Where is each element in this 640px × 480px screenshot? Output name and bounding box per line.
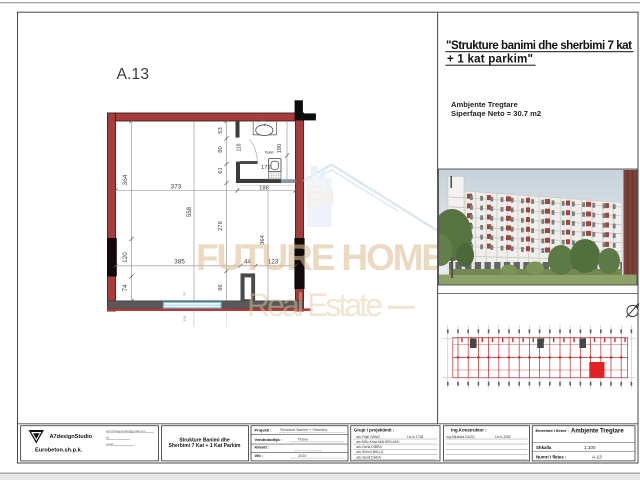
svg-text:FUTURE HOME: FUTURE HOME xyxy=(196,237,446,278)
svg-text:Ambjente Tregtare: Ambjente Tregtare xyxy=(571,428,624,434)
svg-text:Shkalla: Shkalla xyxy=(536,445,552,450)
svg-text:ark.Vandi DADA: ark.Vandi DADA xyxy=(356,455,381,459)
svg-text:373: 373 xyxy=(171,184,182,191)
svg-text:Ing.Miranda DAZO: Ing.Miranda DAZO xyxy=(446,435,475,439)
svg-text:ark.Fiqiri DANO: ark.Fiqiri DANO xyxy=(356,435,380,439)
svg-text:A-13: A-13 xyxy=(592,454,602,459)
svg-text:Vendndodhja :: Vendndodhja : xyxy=(255,437,283,442)
svg-text:53: 53 xyxy=(218,127,224,133)
svg-text:ark.Gerta DIBRA: ark.Gerta DIBRA xyxy=(356,445,382,449)
svg-text:Lic.K.2062: Lic.K.2062 xyxy=(495,435,511,439)
svg-text:80: 80 xyxy=(218,146,224,152)
svg-text:Klienti :: Klienti : xyxy=(255,445,270,450)
svg-text:2020: 2020 xyxy=(298,454,306,458)
svg-text:278: 278 xyxy=(218,221,224,231)
svg-text:arch7designstudio@gmail.com: arch7designstudio@gmail.com xyxy=(106,429,146,433)
svg-text:Toalet: Toalet xyxy=(265,150,274,154)
svg-text:Strukture Banimi + Sherbimi: Strukture Banimi + Sherbimi xyxy=(280,428,328,432)
svg-text:Viti :: Viti : xyxy=(255,453,264,458)
svg-text:ark.MSc.Krisa MAHERLAKU: ark.MSc.Krisa MAHERLAKU xyxy=(356,440,400,444)
svg-text:385: 385 xyxy=(174,259,185,266)
svg-text:Eurobeton.sh.p.k.: Eurobeton.sh.p.k. xyxy=(35,448,83,454)
svg-text:172: 172 xyxy=(261,165,271,171)
svg-text:61: 61 xyxy=(218,167,224,173)
svg-text:Siperfaqe Neto = 30.7 m2: Siperfaqe Neto = 30.7 m2 xyxy=(451,109,541,118)
svg-text:A.13: A.13 xyxy=(117,66,150,83)
svg-text:ark.Shiron BALLA: ark.Shiron BALLA xyxy=(356,450,384,454)
svg-text:Sherbimi 7 Kat + 1 Kat Parkim: Sherbimi 7 Kat + 1 Kat Parkim xyxy=(169,443,242,449)
svg-text:Projekti :: Projekti : xyxy=(255,427,272,432)
svg-text:120: 120 xyxy=(122,252,129,263)
svg-text:Emertimi i fletes :: Emertimi i fletes : xyxy=(536,428,569,433)
svg-text:70: 70 xyxy=(183,292,187,296)
svg-text:"Strukture banimi dhe sherbimi: "Strukture banimi dhe sherbimi 7 kat xyxy=(446,39,632,52)
svg-text:FH: FH xyxy=(307,187,335,210)
svg-text:364: 364 xyxy=(122,174,129,185)
svg-text:86: 86 xyxy=(218,284,224,290)
svg-text:email:: email: xyxy=(106,442,114,446)
svg-text:tel:: tel: xyxy=(106,436,110,440)
svg-text:74: 74 xyxy=(122,284,129,292)
svg-text:+ 1 kat parkim": + 1 kat parkim" xyxy=(447,53,533,66)
svg-text:180: 180 xyxy=(277,144,283,154)
svg-text:A7designStudio: A7designStudio xyxy=(50,434,93,440)
svg-text:118: 118 xyxy=(236,143,242,151)
svg-text:Grupi i projektimit :: Grupi i projektimit : xyxy=(354,427,395,432)
svg-text:188: 188 xyxy=(259,185,269,191)
svg-text:Tirane: Tirane xyxy=(298,438,309,442)
svg-text:1:100: 1:100 xyxy=(584,445,596,450)
svg-text:Ambjente Tregtare: Ambjente Tregtare xyxy=(451,100,518,109)
svg-text:Numri i fletes :: Numri i fletes : xyxy=(536,454,567,459)
svg-text:558: 558 xyxy=(187,206,193,217)
svg-text:108: 108 xyxy=(183,316,187,322)
svg-text:300: 300 xyxy=(261,119,266,123)
svg-text:Ing.Konstruktor :: Ing.Konstruktor : xyxy=(451,427,487,432)
svg-text:Real Estate: Real Estate xyxy=(247,287,383,323)
svg-text:Lic.A-1738: Lic.A-1738 xyxy=(407,435,423,439)
